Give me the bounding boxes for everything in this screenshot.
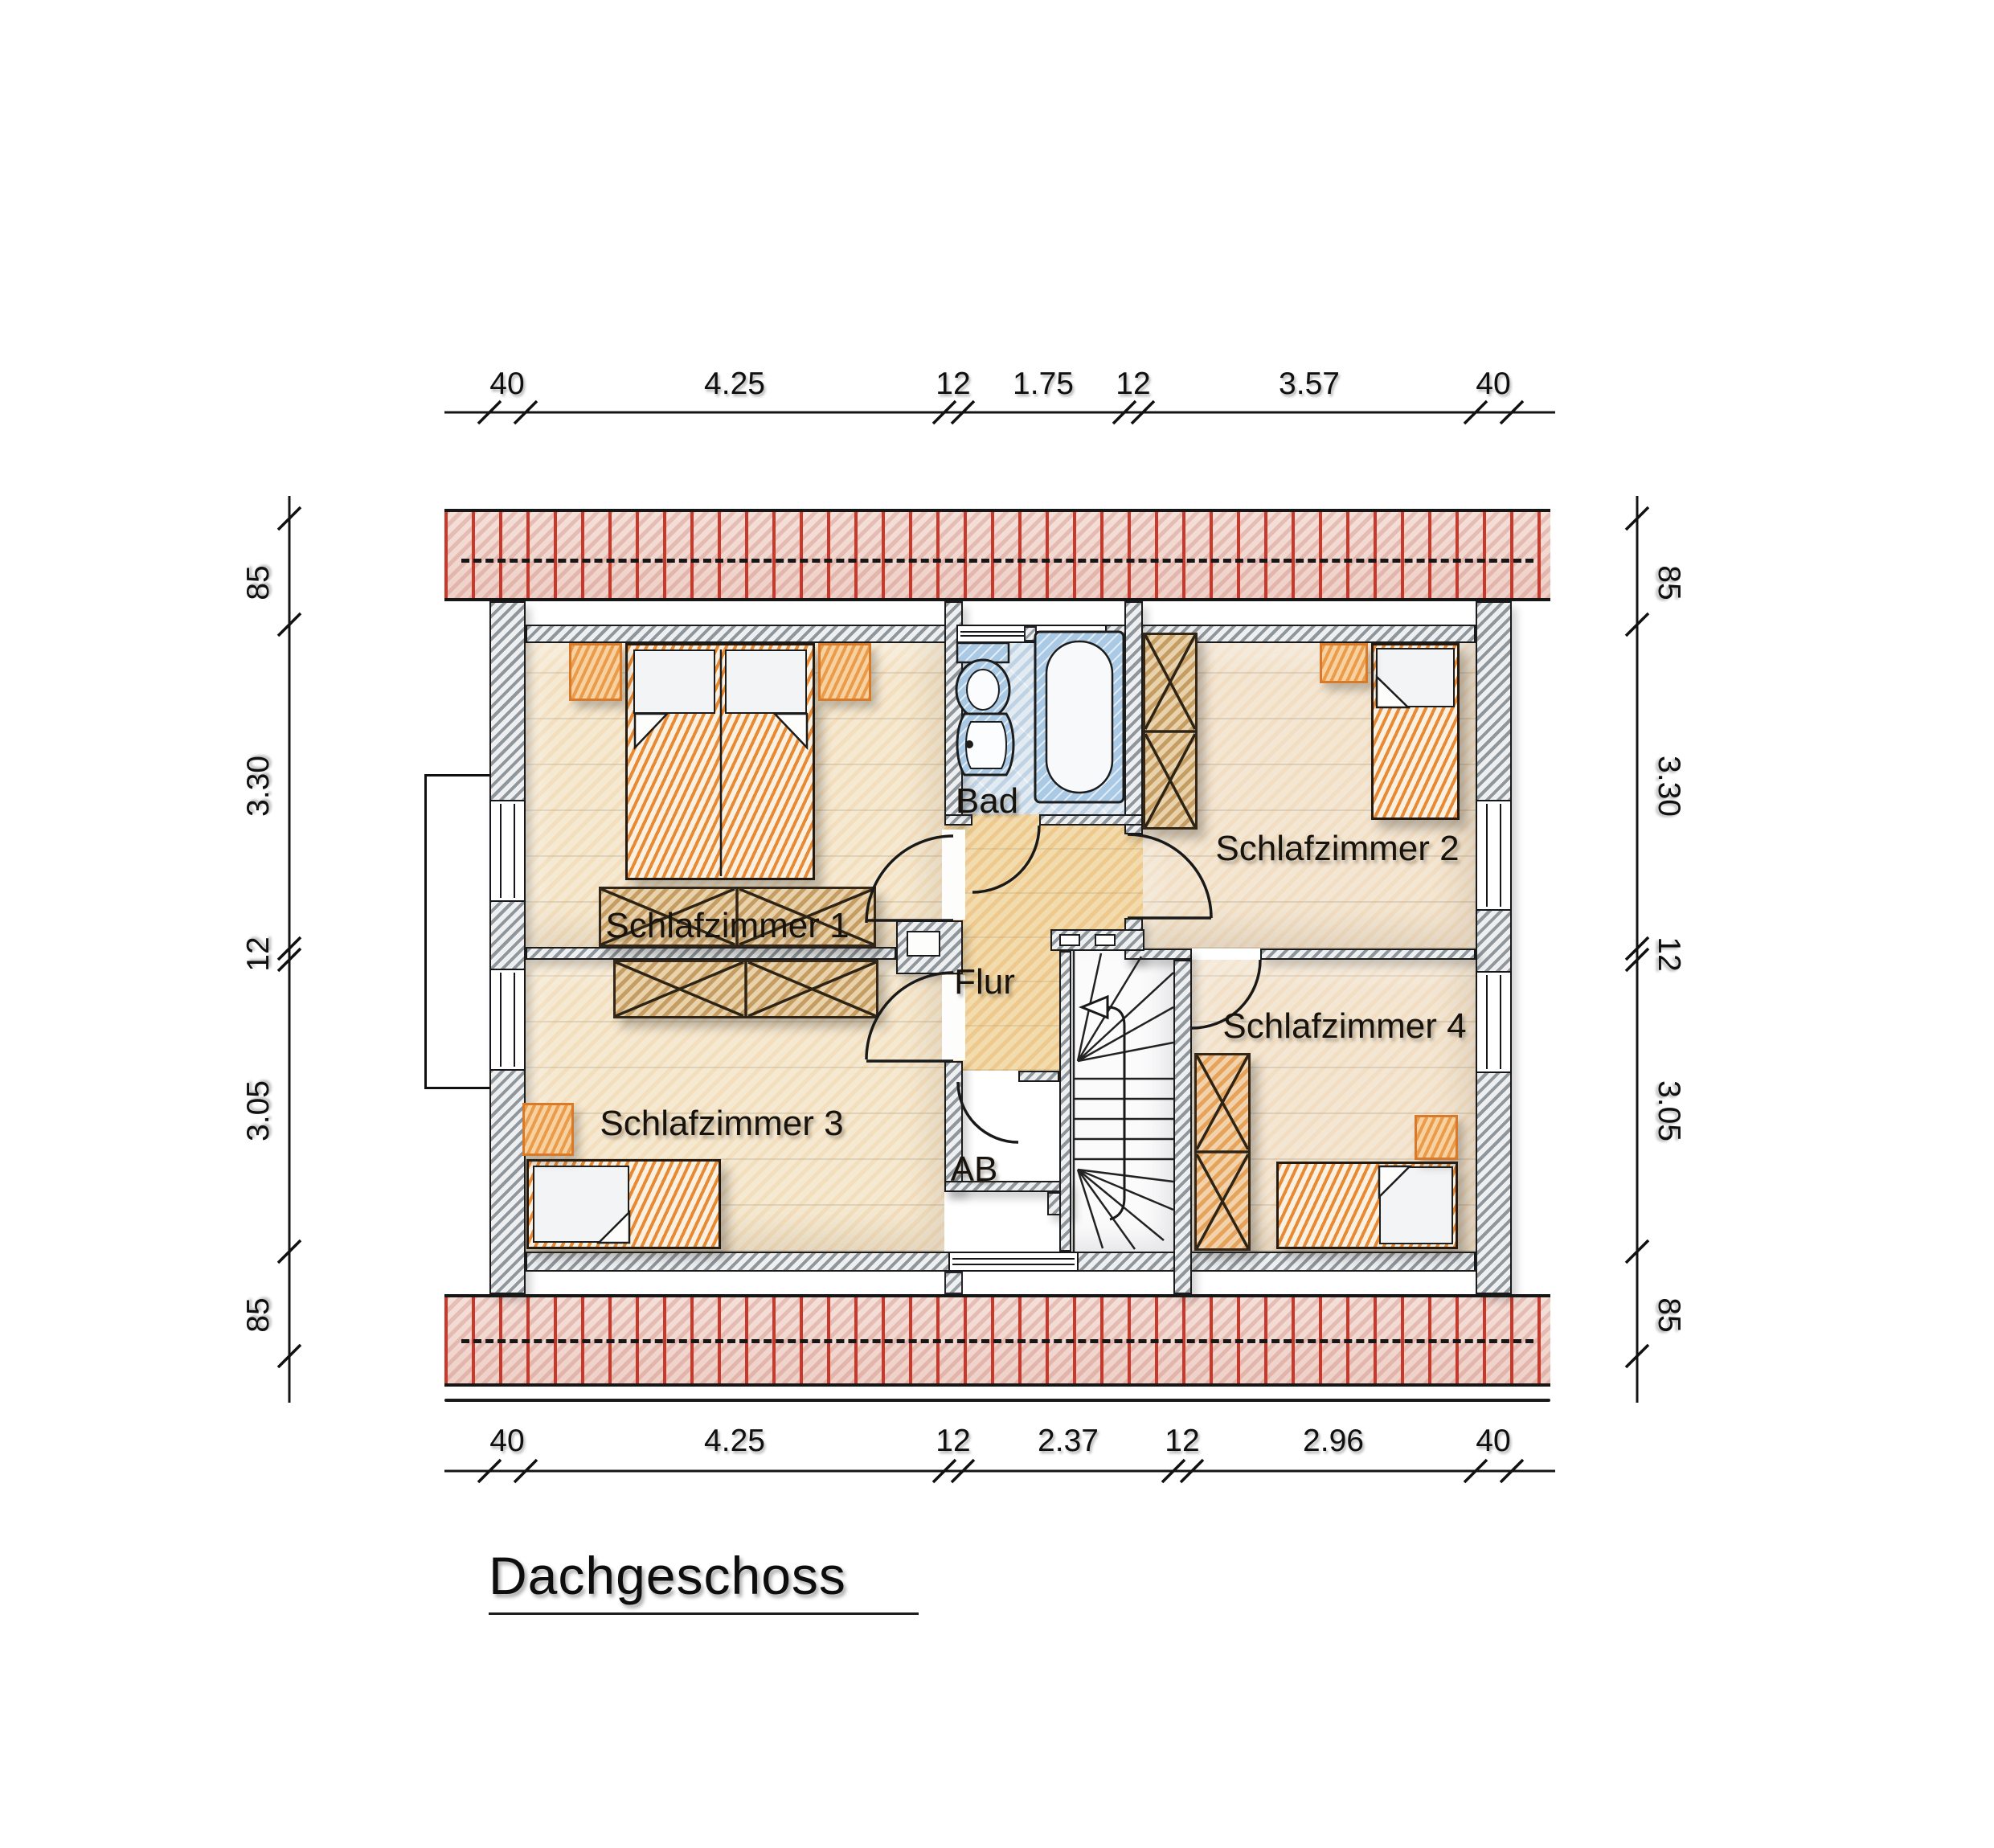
- window-left-1: [489, 800, 526, 902]
- left-dormer-outline: [424, 774, 493, 1089]
- window-left-2-frame: [500, 973, 515, 1067]
- window-right-2: [1476, 971, 1512, 1073]
- dim-bottom-2: 12: [936, 1424, 970, 1459]
- room-label-schlafzimmer2: Schlafzimmer 2: [1215, 829, 1459, 869]
- room-label-schlafzimmer3: Schlafzimmer 3: [600, 1104, 843, 1144]
- room-label-schlafzimmer1: Schlafzimmer 1: [605, 906, 849, 946]
- pillow-schlafzimmer3: [533, 1166, 629, 1243]
- window-left-1-frame: [500, 804, 515, 898]
- window-right-1-frame: [1486, 804, 1501, 907]
- dim-bottom-5: 2.96: [1303, 1424, 1364, 1459]
- window-bad-top: [956, 625, 1107, 643]
- wall-middle-west: [526, 947, 896, 960]
- window-below-stairs-frame: [952, 1258, 1075, 1265]
- door-opening-schlafzimmer1: [942, 830, 965, 920]
- nightstand-schlafzimmer4: [1415, 1115, 1458, 1160]
- pillow-schlafzimmer1-right: [725, 649, 807, 714]
- stairwell-floor: [1071, 951, 1173, 1252]
- dim-top-6: 40: [1476, 367, 1510, 402]
- room-label-flur: Flur: [954, 962, 1015, 1002]
- dim-left-1: 3.30: [241, 756, 276, 817]
- door-jamb-notch: [907, 931, 940, 957]
- dim-bottom-1: 4.25: [704, 1424, 765, 1459]
- dim-right-1: 3.30: [1651, 756, 1686, 817]
- wardrobe-schlafzimmer2: [1143, 633, 1198, 830]
- dim-top-2: 12: [936, 367, 970, 402]
- floor-plan-canvas: Schlafzimmer 1 Schlafzimmer 2 Schlafzimm…: [0, 0, 1994, 1848]
- dim-top-3: 1.75: [1013, 367, 1074, 402]
- nightstand-schlafzimmer2: [1320, 643, 1368, 683]
- wardrobe-schlafzimmer3: [613, 960, 878, 1018]
- room-label-schlafzimmer4: Schlafzimmer 4: [1222, 1006, 1466, 1047]
- dim-top-0: 40: [489, 367, 524, 402]
- dim-left-4: 85: [241, 1297, 276, 1332]
- dim-right-0: 85: [1651, 565, 1686, 600]
- wall-exterior-right: [1476, 601, 1512, 1294]
- dim-bottom-0: 40: [489, 1424, 524, 1459]
- wall-stair-left: [1059, 951, 1071, 1252]
- pillow-schlafzimmer4: [1379, 1166, 1453, 1244]
- dim-bottom-6: 40: [1476, 1424, 1510, 1459]
- dim-top-4: 12: [1116, 367, 1150, 402]
- dim-left-0: 85: [241, 565, 276, 600]
- window-left-2: [489, 969, 526, 1071]
- window-right-1: [1476, 800, 1512, 911]
- nightstand-schlafzimmer3: [522, 1103, 574, 1156]
- wall-post-bottom-left: [944, 1272, 963, 1294]
- dim-bottom-3: 2.37: [1038, 1424, 1099, 1459]
- stair-rail-inset-2: [1095, 934, 1116, 946]
- page-title: Dachgeschoss: [489, 1545, 919, 1615]
- dim-right-3: 3.05: [1651, 1080, 1686, 1141]
- window-right-2-frame: [1486, 975, 1501, 1069]
- wall-stair-right: [1173, 960, 1192, 1294]
- dim-left-3: 3.05: [241, 1080, 276, 1141]
- dim-bottom-4: 12: [1165, 1424, 1199, 1459]
- dim-left-2: 12: [241, 936, 276, 971]
- roof-strip-top: [444, 509, 1550, 601]
- pillow-schlafzimmer1-left: [633, 649, 715, 714]
- nightstand-schlafzimmer1-right: [818, 643, 871, 701]
- roof-strip-top-midline: [461, 559, 1534, 563]
- dim-top-1: 4.25: [704, 367, 765, 402]
- nightstand-schlafzimmer1-left: [569, 643, 622, 701]
- wall-middle-east-b: [1260, 949, 1476, 960]
- dim-right-4: 85: [1651, 1297, 1686, 1332]
- stair-rail-inset-1: [1059, 934, 1080, 946]
- wall-bad-bottom-east: [1039, 814, 1143, 826]
- room-label-ab: AB: [951, 1149, 998, 1190]
- roof-edge-line-bottom: [444, 1399, 1550, 1402]
- dim-right-2: 12: [1651, 936, 1686, 971]
- wall-ab-top: [1018, 1071, 1059, 1082]
- wardrobe-schlafzimmer4: [1194, 1053, 1251, 1251]
- room-label-bad: Bad: [956, 781, 1018, 822]
- pillow-schlafzimmer2: [1376, 648, 1455, 707]
- window-below-stairs: [948, 1252, 1079, 1272]
- wall-bad-right: [1124, 601, 1143, 834]
- window-bad-top-mullion: [1024, 626, 1037, 641]
- roof-strip-bottom-midline: [461, 1339, 1534, 1343]
- dim-top-5: 3.57: [1279, 367, 1340, 402]
- wall-exterior-left: [489, 601, 526, 1294]
- roof-strip-bottom: [444, 1294, 1550, 1387]
